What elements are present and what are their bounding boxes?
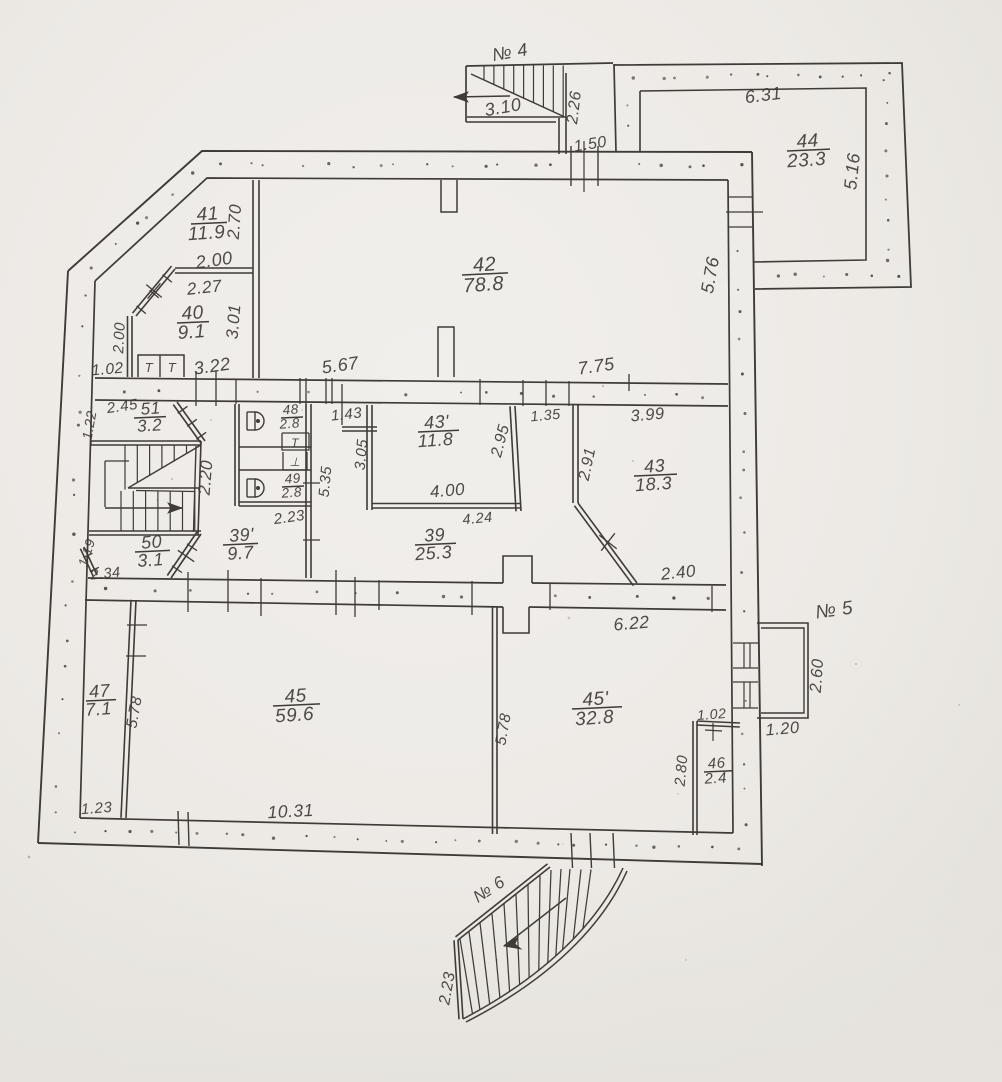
svg-text:6.22: 6.22 xyxy=(613,611,651,634)
svg-text:10.31: 10.31 xyxy=(267,800,314,822)
svg-text:1.23: 1.23 xyxy=(81,799,113,818)
svg-text:2.80: 2.80 xyxy=(672,754,692,788)
svg-text:23.3: 23.3 xyxy=(785,149,826,173)
svg-text:4.24: 4.24 xyxy=(462,510,494,529)
svg-text:25.3: 25.3 xyxy=(413,542,452,565)
svg-text:3.1: 3.1 xyxy=(137,549,165,571)
svg-text:3.05: 3.05 xyxy=(352,438,372,471)
svg-text:2.8: 2.8 xyxy=(280,484,302,500)
svg-text:Т: Т xyxy=(291,436,300,450)
svg-text:3.99: 3.99 xyxy=(630,405,666,426)
svg-text:3.01: 3.01 xyxy=(223,303,245,340)
svg-text:9.1: 9.1 xyxy=(177,321,206,344)
svg-text:4.00: 4.00 xyxy=(429,480,466,502)
svg-text:1.02: 1.02 xyxy=(91,360,125,380)
svg-text:1.02: 1.02 xyxy=(697,705,727,723)
svg-text:⊥: ⊥ xyxy=(290,455,301,469)
svg-text:7.1: 7.1 xyxy=(85,698,113,720)
svg-text:11.8: 11.8 xyxy=(417,429,454,451)
svg-text:2.40: 2.40 xyxy=(659,561,697,584)
svg-text:2.27: 2.27 xyxy=(185,276,223,299)
svg-text:2.20: 2.20 xyxy=(194,459,216,497)
svg-text:Т: Т xyxy=(145,360,154,375)
svg-text:2.70: 2.70 xyxy=(224,203,245,240)
svg-text:1.43: 1.43 xyxy=(330,404,363,424)
svg-text:2.8: 2.8 xyxy=(278,415,300,431)
svg-text:59.6: 59.6 xyxy=(274,704,314,728)
svg-text:3.2: 3.2 xyxy=(136,415,162,436)
svg-text:Т: Т xyxy=(168,360,177,375)
svg-text:32.8: 32.8 xyxy=(574,707,614,731)
svg-text:2.00: 2.00 xyxy=(110,322,129,355)
svg-text:1.20: 1.20 xyxy=(765,719,801,740)
svg-text:11.9: 11.9 xyxy=(187,222,226,246)
svg-text:5.35: 5.35 xyxy=(316,465,336,498)
svg-text:2.4: 2.4 xyxy=(703,769,727,788)
svg-text:2.60: 2.60 xyxy=(807,658,827,695)
svg-text:5.16: 5.16 xyxy=(840,151,864,190)
svg-text:9.7: 9.7 xyxy=(227,542,255,564)
svg-text:1.35: 1.35 xyxy=(530,407,562,426)
svg-text:78.8: 78.8 xyxy=(462,273,504,298)
svg-text:18.3: 18.3 xyxy=(634,473,672,496)
